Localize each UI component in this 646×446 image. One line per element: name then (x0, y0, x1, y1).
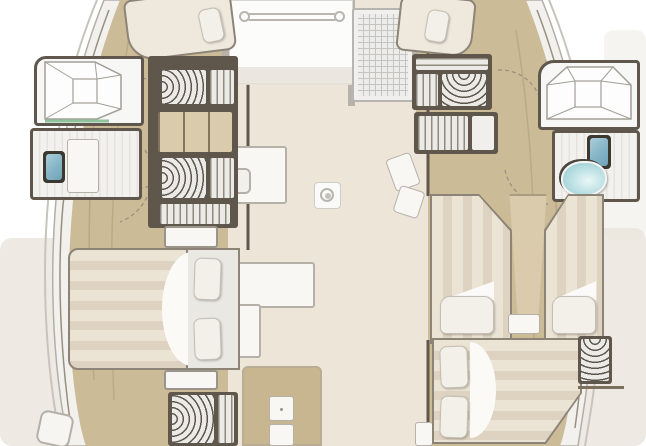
starboard-shower-tray (541, 63, 637, 127)
owner-footboard-shelf (164, 370, 218, 390)
saloon-aft-locker (415, 422, 433, 446)
port-shower-tray (37, 59, 141, 123)
ceiling-light-dot (325, 193, 331, 199)
port-wardrobe-column (148, 56, 238, 228)
owner-pillow-2 (193, 318, 221, 361)
port-toilet (43, 151, 65, 183)
ceiling-light (314, 182, 341, 209)
port-companionway-steps (160, 204, 230, 224)
starboard-aft-pillow-2 (439, 396, 468, 439)
starboard-forward-pillow (423, 8, 450, 43)
starboard-wardrobe-mid (414, 112, 498, 154)
starboard-hanging-locker-1 (442, 74, 486, 106)
starboard-shower-room (538, 60, 640, 130)
starboard-shelf-unit-1 (416, 74, 438, 106)
starboard-twin-step (508, 314, 540, 334)
owner-bed (68, 248, 240, 370)
starboard-aft-hanging-locker (581, 339, 609, 381)
starboard-aft-step-edge (578, 386, 624, 389)
starboard-head (552, 130, 640, 202)
port-vanity (67, 139, 99, 193)
bow-berth-rail-knob-right (334, 11, 345, 22)
starboard-aft-wardrobe (578, 336, 612, 384)
port-forward-pillow (197, 6, 226, 44)
starboard-shelf-strip (416, 58, 488, 70)
port-hanging-locker-1 (162, 70, 206, 104)
starboard-aft-pillow-1 (439, 346, 468, 389)
starboard-single-bed-right (544, 194, 604, 344)
starboard-wardrobe-forward (412, 54, 492, 110)
table-runner-bottom (269, 424, 294, 446)
owner-hanging-locker (172, 395, 214, 443)
owner-aft-wardrobe (168, 392, 238, 446)
yacht-floorplan (0, 0, 646, 446)
port-cubby-shelves (158, 112, 232, 152)
starboard-shelf-unit-2 (418, 116, 468, 150)
table-runner-top (269, 396, 294, 421)
starboard-forward-bed (395, 0, 477, 58)
starboard-single-bed-left-pillow (440, 296, 494, 334)
table-runner-dot (280, 408, 283, 411)
owner-pillow-1 (193, 258, 221, 301)
starboard-locker-door (472, 116, 494, 150)
bow-berth-rail-knob-left (239, 11, 250, 22)
saloon-table (242, 366, 322, 446)
port-shelf-unit-2 (210, 158, 234, 198)
starboard-sink (561, 161, 607, 197)
bow-berth-rail (246, 13, 338, 21)
port-hanging-locker-2 (162, 158, 206, 198)
starboard-single-bed-right-pillow (552, 296, 596, 334)
bow-berth-shadow (230, 67, 352, 85)
port-head (30, 128, 142, 200)
bow-berth (229, 0, 353, 84)
port-shower-room (34, 56, 144, 126)
owner-headboard-shelf (164, 226, 218, 248)
owner-shelf-unit (218, 395, 234, 443)
port-shelf-unit-1 (210, 70, 234, 104)
port-aft-seat (35, 409, 75, 446)
